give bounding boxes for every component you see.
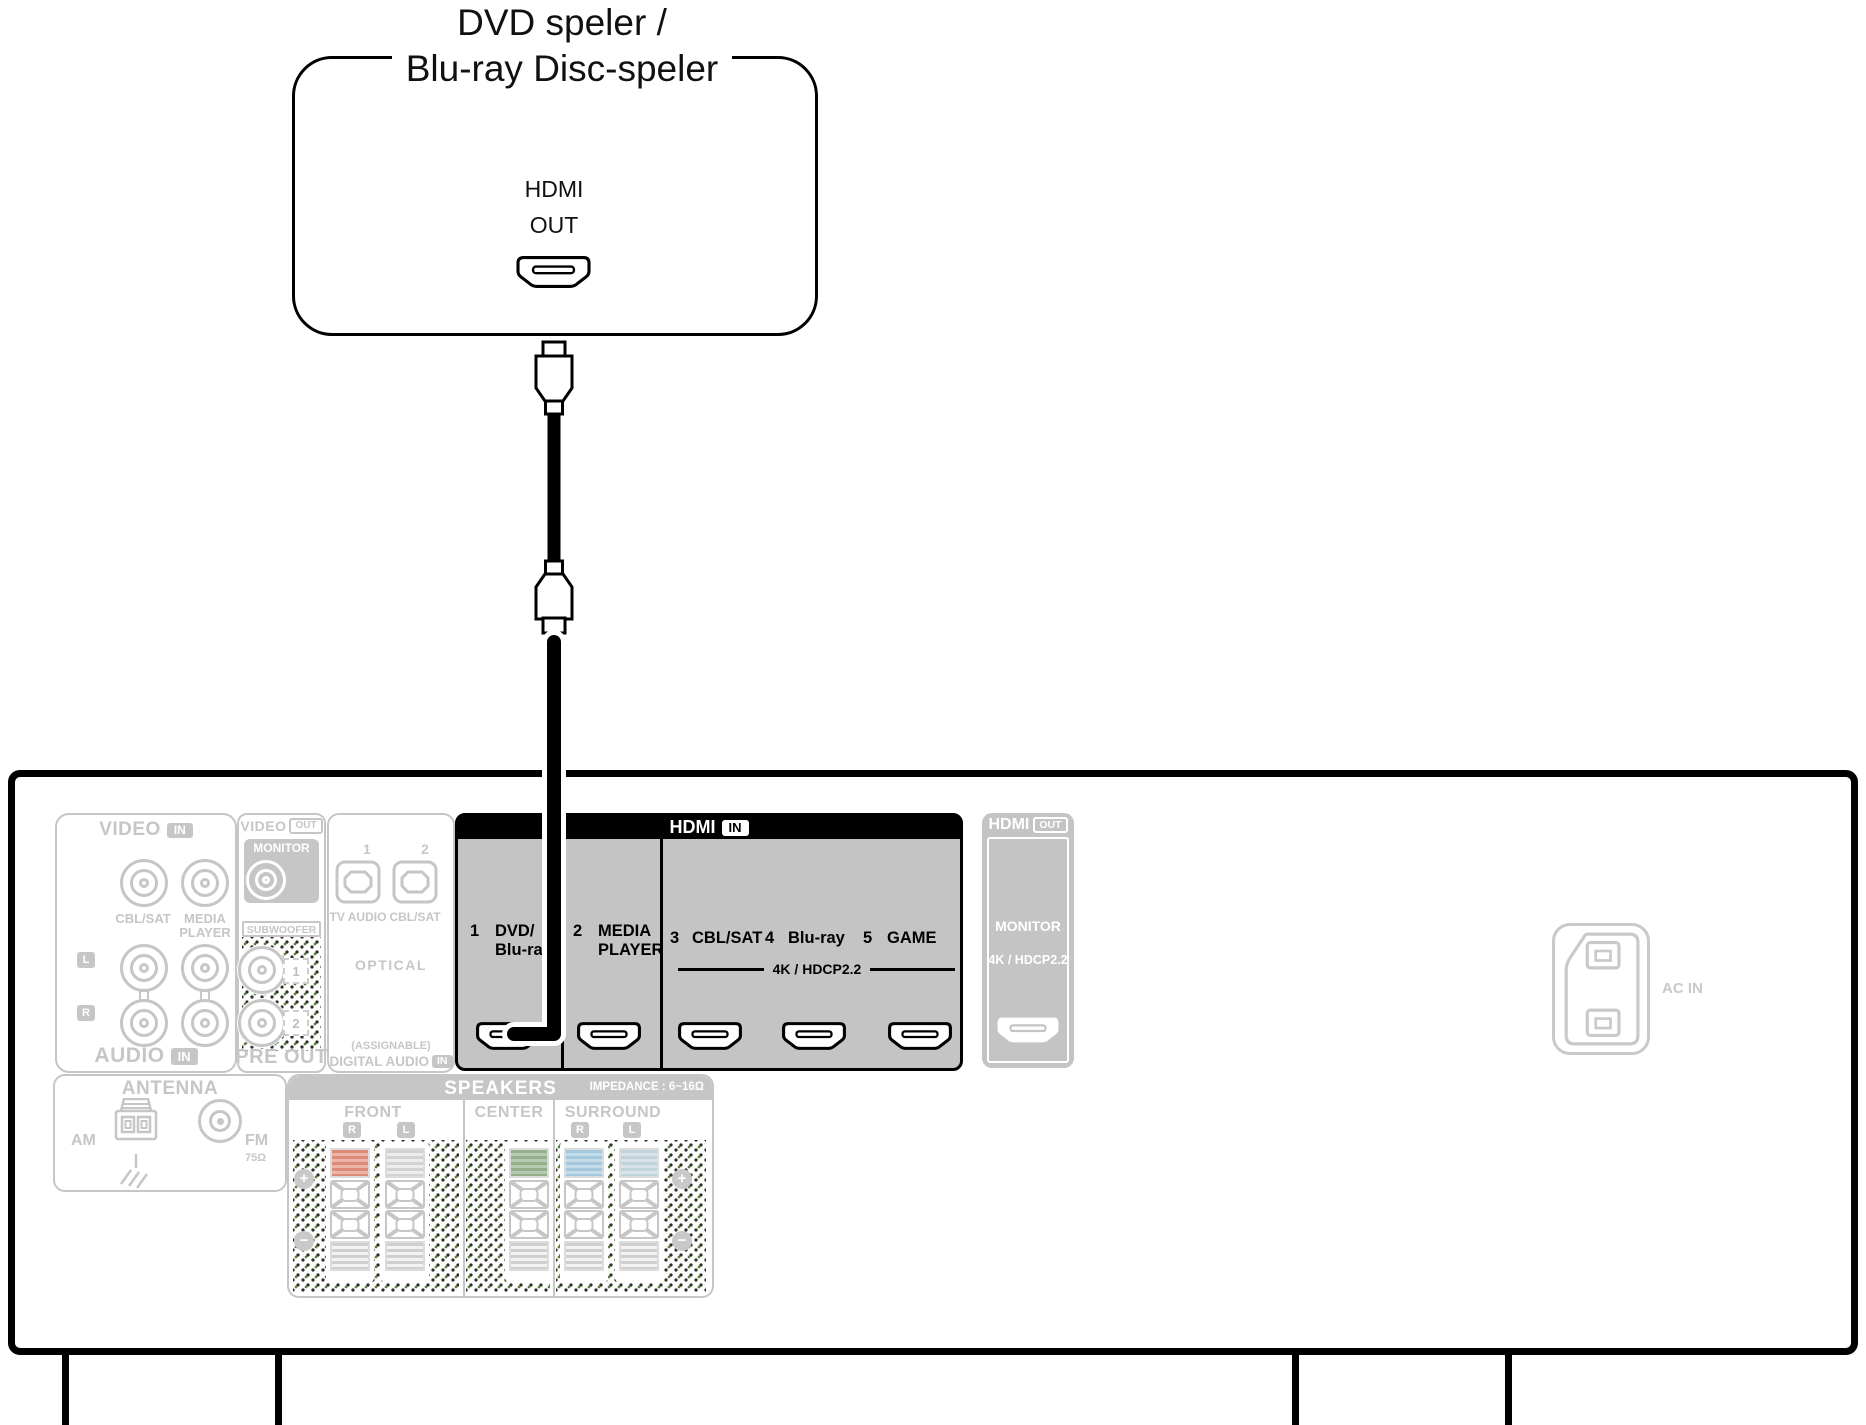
surround-r-chip: R [571,1122,589,1138]
binding-post [385,1180,425,1209]
device-title-line1: DVD speler / [443,0,681,46]
ground-icon [115,1154,151,1188]
pre-out-title: PRE OUT [233,1046,330,1069]
media-label: MEDIA [165,911,245,926]
hdmi-in-badge: IN [722,820,749,836]
optical-jack-tv-audio [335,860,381,904]
fm-label: FM [245,1132,268,1150]
rca-jack-monitor-out [246,860,286,900]
hdmi-port4-label: Blu-ray [788,929,845,948]
hdcp-label: 4K / HDCP2.2 [758,961,876,977]
rca-jack-video-mediaplayer [181,859,229,907]
antenna-title: ANTENNA [55,1078,285,1100]
hdmi-in-port-5 [887,1022,953,1050]
surround-l-chip: L [623,1122,641,1138]
plus-icon: + [672,1169,692,1189]
digital-audio-footer: DIGITAL AUDIO IN [321,1054,461,1069]
rca-jack-audio-r-cblsat [120,999,168,1047]
speakers-header-band: SPEAKERS IMPEDANCE : 6~16Ω [289,1076,712,1100]
hdmi-port2-label2: PLAYER [598,941,663,960]
binding-post [564,1180,604,1209]
monitor-label: MONITOR [244,841,319,855]
front-l-terminal-stripe [385,1148,425,1178]
video-out-badge: OUT [289,818,322,834]
hdcp-line-left [678,968,764,971]
monitor-preout-section: VIDEO OUT MONITOR SUBWOOFER 1 2 PRE OUT [237,813,326,1073]
terminal-stripe-bottom [564,1241,604,1271]
binding-post [619,1210,659,1239]
subwoofer-2-number: 2 [283,1010,309,1036]
audio-in-badge: IN [171,1048,198,1065]
optical-2-number: 2 [421,841,429,857]
hdmi-port3-label: CBL/SAT [692,929,762,948]
subwoofer-1-number: 1 [283,958,309,984]
hdmi-port3-num: 3 [670,929,679,948]
binding-post [385,1210,425,1239]
speakers-section: SPEAKERS IMPEDANCE : 6~16Ω FRONT R L CEN… [287,1074,714,1298]
audio-in-title: AUDIO [94,1044,164,1068]
center-terminal-stripe [509,1148,549,1178]
surround-l-terminal-stripe [619,1148,659,1178]
front-l-chip: L [397,1122,415,1138]
binding-post [330,1180,370,1209]
audio-in-footer: AUDIO IN [57,1044,235,1068]
hdmi-out-title: HDMI [988,816,1029,834]
binding-post [330,1210,370,1239]
surround-group-label: SURROUND [561,1104,665,1122]
binding-post [564,1210,604,1239]
hdmi-in-port-2 [576,1022,642,1050]
am-terminal-icon [110,1098,162,1154]
hdmi-port4-num: 4 [765,929,774,948]
front-terminal-zone [293,1140,459,1292]
hdmi-out-header: HDMI OUT [982,816,1074,834]
device-hdmi-out-port-icon [515,255,592,289]
monitor-jack-panel: MONITOR [244,839,319,903]
am-label: AM [71,1132,96,1150]
plus-icon: + [294,1169,314,1189]
video-in-title: VIDEO [99,819,161,841]
connection-diagram: DVD speler / Blu-ray Disc-speler HDMI OU… [0,0,1866,1425]
binding-post [509,1210,549,1239]
hdmi-out-hdcp-label: 4K / HDCP2.2 [982,953,1074,967]
hdmi-in-title: HDMI [670,817,716,838]
video-out-title: VIDEO [240,818,286,834]
optical-jack-cblsat [392,860,438,904]
rca-jack-subwoofer-1 [238,946,286,994]
hdmi-cable-connectors [530,340,578,636]
hdmi-out-monitor-label: MONITOR [982,918,1074,934]
hdmi-in-port-4 [781,1022,847,1050]
rca-jack-audio-l-cblsat [120,944,168,992]
group-divider [463,1100,465,1296]
player-label: PLAYER [165,925,245,940]
hdmi-cable-run [500,628,580,1048]
ac-inlet-icon [1561,932,1641,1046]
hdmi-out-section: HDMI OUT MONITOR 4K / HDCP2.2 [982,813,1074,1068]
hdmi-port5-num: 5 [863,929,872,948]
video-audio-in-section: VIDEO IN CBL/SAT MEDIA PLAYER L R AUDIO … [55,813,237,1073]
front-group-label: FRONT [313,1104,433,1122]
hdmi-out-port [995,1016,1061,1044]
digital-audio-badge: IN [432,1055,453,1068]
ac-in-label: AC IN [1662,980,1703,997]
rca-jack-audio-l-mediaplayer [181,944,229,992]
digital-audio-title: DIGITAL AUDIO [330,1054,430,1069]
surround-r-terminal-stripe [564,1148,604,1178]
fm-jack-icon [198,1099,242,1143]
left-channel-chip: L [77,952,95,968]
antenna-section: ANTENNA AM FM 75Ω [53,1074,287,1192]
minus-icon: − [294,1231,314,1251]
video-in-header: VIDEO IN [57,819,235,841]
digital-cblsat-label: CBL/SAT [375,910,455,924]
video-in-badge: IN [167,823,193,838]
right-channel-chip: R [77,1005,95,1021]
front-r-terminal-stripe [330,1148,370,1178]
subwoofer-label: SUBWOOFER [242,921,321,937]
device-title: DVD speler / Blu-ray Disc-speler [312,0,812,92]
center-group-label: CENTER [469,1104,549,1122]
terminal-stripe-bottom [330,1241,370,1271]
hdmi-port1-num: 1 [470,922,479,941]
assignable-label: (ASSIGNABLE) [329,1040,453,1052]
rca-jack-subwoofer-2 [238,999,286,1047]
hdmi-in-port-3 [677,1022,743,1050]
optical-1-number: 1 [363,841,371,857]
rca-jack-audio-r-mediaplayer [181,999,229,1047]
terminal-stripe-bottom [619,1241,659,1271]
group-divider [553,1100,555,1296]
device-title-line2: Blu-ray Disc-speler [392,46,733,92]
hdcp-line-right [870,968,955,971]
optical-label: OPTICAL [329,957,453,973]
terminal-stripe-bottom [385,1241,425,1271]
hdmi-port5-label: GAME [887,929,937,948]
binding-post [619,1180,659,1209]
front-r-chip: R [343,1122,361,1138]
hdmi-out-badge: OUT [1033,817,1067,833]
rca-jack-video-cblsat [120,859,168,907]
impedance-label: IMPEDANCE : 6~16Ω [590,1081,704,1093]
hdmi-port2-label: MEDIA [598,922,651,941]
minus-icon: − [672,1231,692,1251]
digital-audio-section: 1 2 TV AUDIO CBL/SAT OPTICAL (ASSIGNABLE… [327,813,455,1073]
fm-impedance-label: 75Ω [245,1152,266,1164]
terminal-stripe-bottom [509,1241,549,1271]
binding-post [509,1180,549,1209]
video-out-header: VIDEO OUT [239,818,324,834]
device-hdmi-out-label: OUT [500,212,608,239]
device-hdmi-label: HDMI [500,176,608,203]
